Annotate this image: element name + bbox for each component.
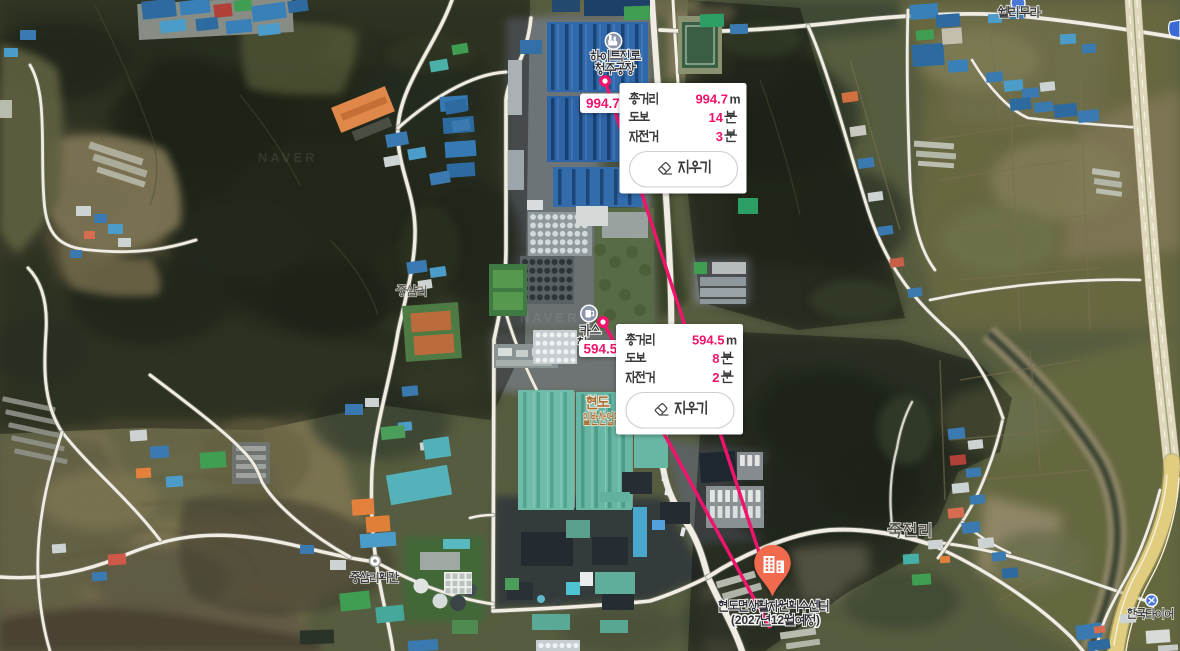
- svg-text:m: m: [726, 333, 737, 347]
- svg-text:8: 8: [712, 351, 719, 366]
- svg-text:3: 3: [716, 129, 723, 144]
- svg-text:12: 12: [771, 613, 785, 627]
- svg-text:994.7: 994.7: [586, 96, 620, 111]
- svg-text:14: 14: [709, 110, 724, 125]
- svg-text:2: 2: [712, 370, 719, 385]
- svg-text:m: m: [730, 92, 741, 106]
- svg-text:): ): [816, 613, 820, 627]
- svg-text:594.5: 594.5: [584, 342, 618, 357]
- svg-text:994.7: 994.7: [695, 91, 728, 106]
- svg-text:(2027: (2027: [731, 613, 762, 627]
- svg-text:594.5: 594.5: [692, 332, 725, 347]
